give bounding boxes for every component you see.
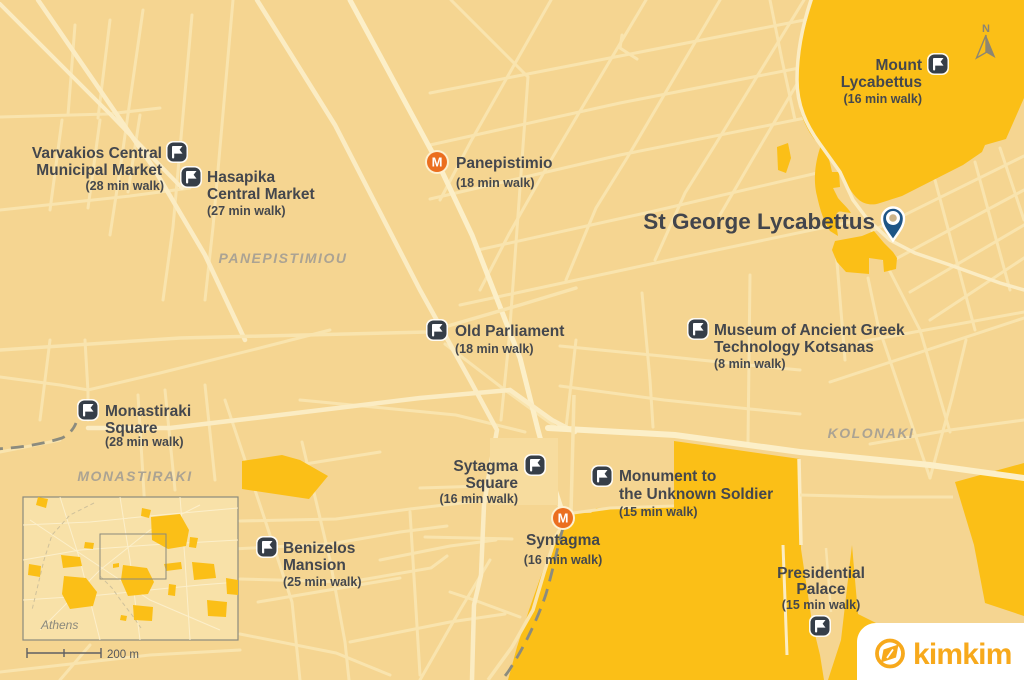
- svg-text:Technology Kotsanas: Technology Kotsanas: [714, 339, 874, 356]
- svg-text:Panepistimio: Panepistimio: [456, 155, 552, 172]
- svg-text:N: N: [982, 23, 990, 35]
- svg-text:Syntagma: Syntagma: [526, 532, 600, 549]
- svg-text:(28 min walk): (28 min walk): [86, 179, 165, 193]
- svg-text:Palace: Palace: [796, 581, 846, 598]
- svg-text:(25 min walk): (25 min walk): [283, 575, 362, 589]
- svg-text:(15 min walk): (15 min walk): [782, 598, 861, 612]
- svg-text:kimkim: kimkim: [913, 638, 1012, 671]
- svg-text:Presidential: Presidential: [777, 565, 865, 582]
- svg-text:Square: Square: [465, 475, 518, 492]
- svg-text:Municipal Market: Municipal Market: [36, 162, 162, 179]
- svg-text:(28 min walk): (28 min walk): [105, 435, 184, 449]
- svg-text:MONASTIRAKI: MONASTIRAKI: [77, 468, 192, 484]
- svg-text:(27 min walk): (27 min walk): [207, 204, 286, 218]
- svg-text:M: M: [558, 511, 569, 526]
- svg-text:Sytagma: Sytagma: [453, 458, 518, 475]
- svg-text:Mount: Mount: [876, 57, 922, 74]
- svg-text:(18 min walk): (18 min walk): [455, 342, 534, 356]
- svg-text:St George Lycabettus: St George Lycabettus: [643, 209, 875, 234]
- svg-text:PANEPISTIMIOU: PANEPISTIMIOU: [219, 250, 348, 266]
- svg-text:(16 min walk): (16 min walk): [524, 553, 603, 567]
- svg-text:Monument to: Monument to: [619, 468, 716, 485]
- svg-text:Benizelos: Benizelos: [283, 540, 355, 557]
- svg-text:Museum of Ancient Greek: Museum of Ancient Greek: [714, 322, 905, 339]
- svg-text:(16 min walk): (16 min walk): [440, 492, 519, 506]
- svg-text:Hasapika: Hasapika: [207, 169, 275, 186]
- svg-text:KOLONAKI: KOLONAKI: [828, 425, 915, 441]
- svg-text:(15 min walk): (15 min walk): [619, 505, 698, 519]
- svg-text:(8 min walk): (8 min walk): [714, 357, 786, 371]
- svg-text:Varvakios Central: Varvakios Central: [32, 145, 162, 162]
- svg-text:200 m: 200 m: [107, 649, 139, 661]
- svg-text:(16 min walk): (16 min walk): [844, 92, 923, 106]
- svg-text:Lycabettus: Lycabettus: [841, 74, 922, 91]
- svg-text:Central Market: Central Market: [207, 186, 315, 203]
- svg-text:Mansion: Mansion: [283, 557, 346, 574]
- svg-text:Athens: Athens: [40, 618, 78, 632]
- svg-text:Old Parliament: Old Parliament: [455, 323, 564, 340]
- svg-text:M: M: [432, 155, 443, 170]
- svg-text:the Unknown Soldier: the Unknown Soldier: [619, 486, 773, 503]
- svg-text:Monastiraki: Monastiraki: [105, 403, 191, 420]
- svg-text:(18 min walk): (18 min walk): [456, 176, 535, 190]
